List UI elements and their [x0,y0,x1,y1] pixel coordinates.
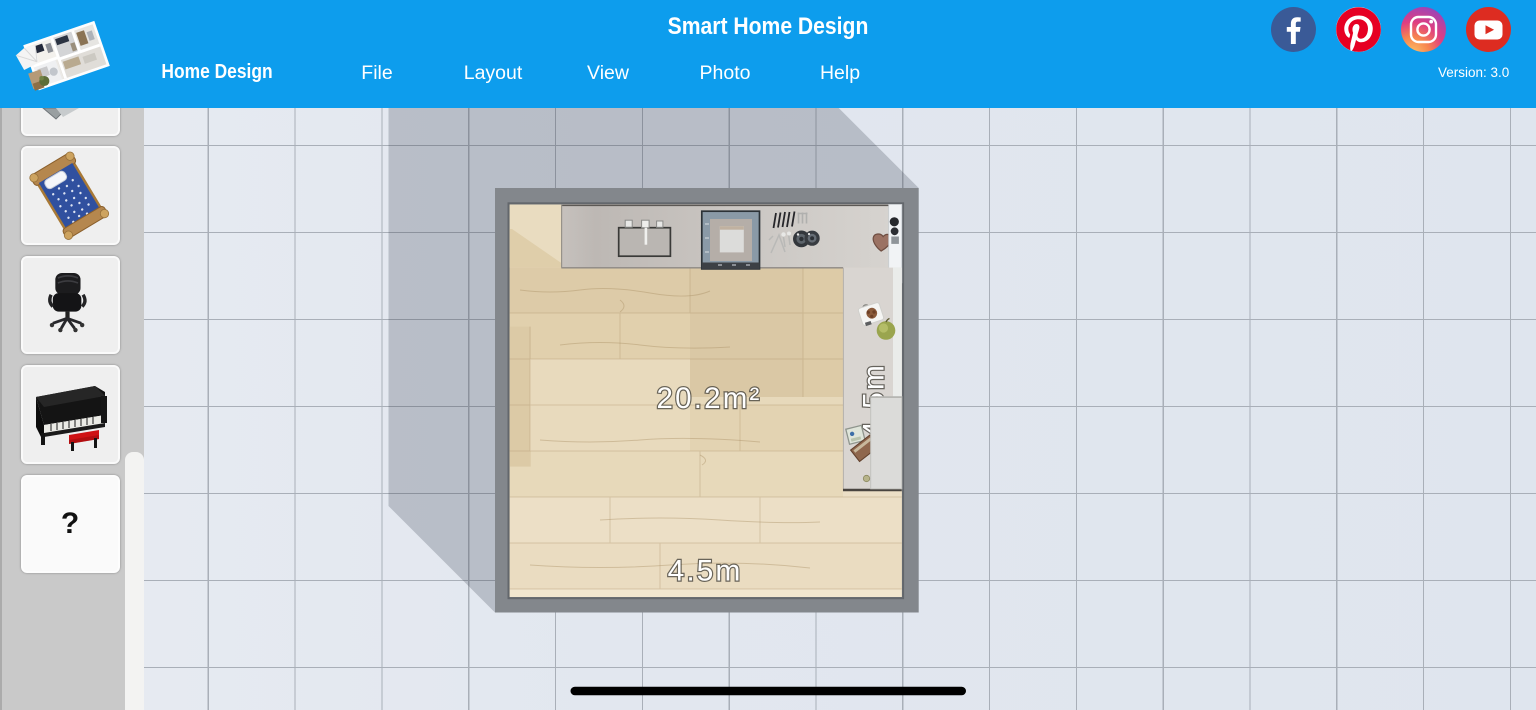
svg-text:20.2m²: 20.2m² [656,382,761,415]
svg-text:4.5m: 4.5m [668,555,743,588]
